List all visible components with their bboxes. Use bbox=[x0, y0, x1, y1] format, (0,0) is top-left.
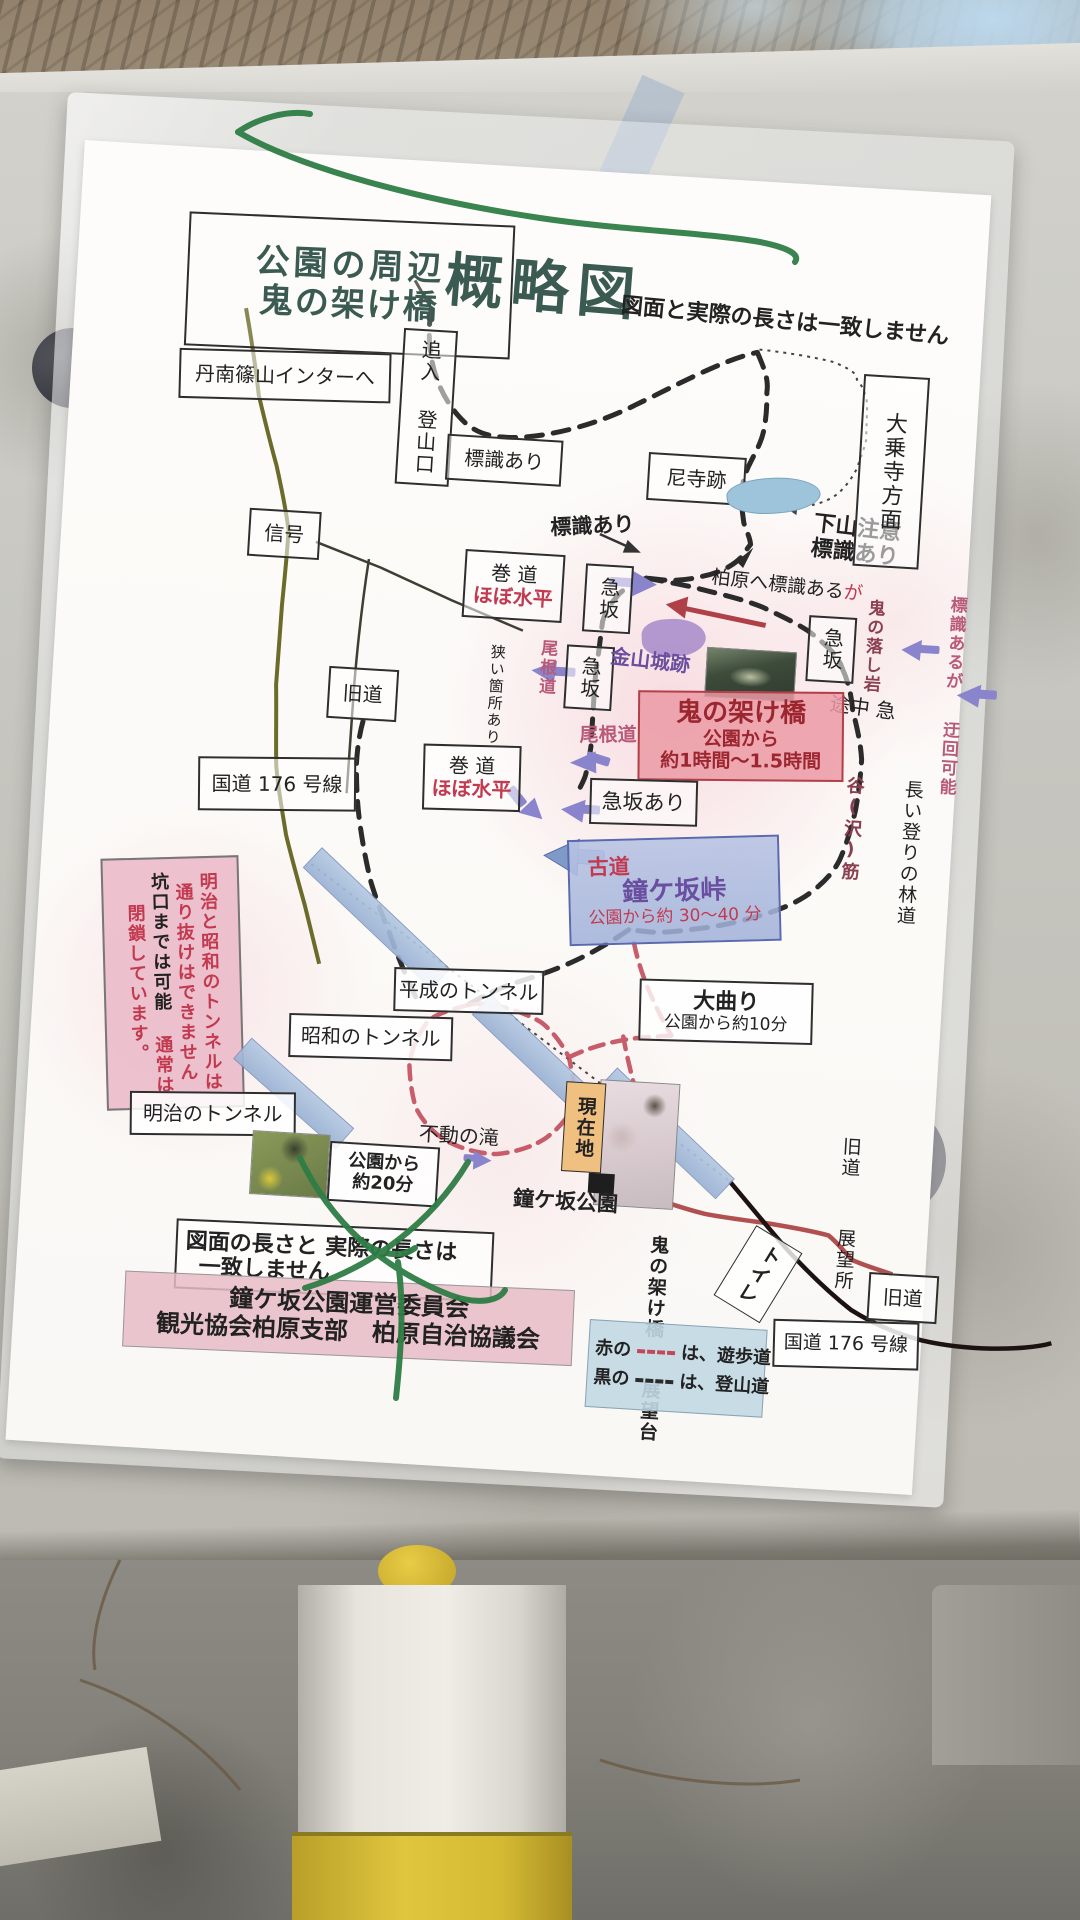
label-heisei-tunnel: 平成のトンネル bbox=[393, 967, 544, 1015]
label-oni-dropped-rock: 鬼の落し岩 bbox=[858, 598, 884, 709]
label-kanegasaka-park: 鐘ケ坂公園 bbox=[512, 1186, 618, 1217]
label-ridge-path-1: 尾根道 bbox=[533, 639, 557, 720]
label-steep-slope-exists: 急坂あり bbox=[589, 778, 698, 827]
legend-box: 赤のは、遊歩道 黒のは、登山道 bbox=[585, 1319, 768, 1418]
label-daijoji-direction: 大乗寺方面 bbox=[852, 374, 930, 570]
flowers-photo-thumbnail bbox=[249, 1130, 331, 1199]
label-tannan-sasayama-interchange: 丹南篠山インターへ bbox=[178, 348, 391, 404]
legend-black-dash-icon bbox=[635, 1378, 673, 1384]
label-traffic-signal: 信号 bbox=[247, 508, 322, 560]
label-meiji-tunnel: 明治のトンネル bbox=[130, 1091, 296, 1136]
photo-of-trail-map-sign: 公園の周辺 鬼の架け橋 概略図 図面と実際の長さは一致しません 丹南篠山インター… bbox=[0, 0, 1080, 1920]
label-signpost-1: 標識あり bbox=[445, 434, 564, 487]
map-paper: 公園の周辺 鬼の架け橋 概略図 図面と実際の長さは一致しません 丹南篠山インター… bbox=[6, 140, 992, 1495]
label-showa-tunnel: 昭和のトンネル bbox=[288, 1013, 453, 1061]
pillar-yellow-base bbox=[292, 1832, 572, 1920]
map-subtitle: 図面と実際の長さは一致しません bbox=[620, 293, 950, 350]
tunnel-warning-box: 明治と昭和のトンネルは 通り抜けはできません 坑口までは可能 通常は閉鎖していま… bbox=[100, 855, 245, 1111]
label-old-road-2: 旧道 bbox=[866, 1272, 939, 1324]
oni-no-kakehashi-info-box: 鬼の架け橋 公園から 約1時間〜1.5時間 bbox=[637, 690, 844, 782]
map-title-line2: 鬼の架け橋 bbox=[258, 281, 440, 328]
label-long-climb-forest-road: 長い登りの林道 bbox=[891, 779, 924, 960]
label-steep-slope-2: 急坂 bbox=[805, 615, 857, 684]
label-20min-from-park: 公園から 約20分 bbox=[327, 1141, 440, 1208]
label-steep-slope-3: 急坂 bbox=[563, 644, 615, 711]
label-ridge-path-2: 尾根道 bbox=[579, 725, 636, 747]
committee-box: 鐘ケ坂公園運営委員会 観光協会柏原支部 柏原自治協議会 bbox=[122, 1271, 575, 1367]
label-route-176-bottom: 国道 176 号線 bbox=[772, 1319, 919, 1371]
label-valley-stream-route: 谷(沢)筋 bbox=[837, 775, 864, 886]
label-steep-slope-1: 急坂 bbox=[582, 563, 634, 634]
label-fudo-falls: 不動の滝 bbox=[418, 1122, 499, 1150]
concrete-block-right bbox=[932, 1585, 1080, 1765]
label-kaibara-signpost: 柏原へ標識あるが bbox=[710, 567, 864, 606]
legend-red-dash-icon bbox=[637, 1349, 675, 1355]
label-old-road-1: 旧道 bbox=[326, 666, 399, 722]
label-traverse-path-2: 巻 道 ほぼ水平 bbox=[422, 744, 522, 813]
label-omagari: 大曲り 公園から約10分 bbox=[638, 978, 814, 1045]
label-signpost-2: 標識あり bbox=[550, 512, 635, 540]
label-traverse-path-1: 巻 道 ほぼ水平 bbox=[462, 549, 566, 623]
label-route-176-top: 国道 176 号線 bbox=[198, 756, 356, 811]
current-location-box: 現在地 bbox=[561, 1081, 606, 1173]
kodo-kanegasaka-pass-box: 古道 鐘ケ坂峠 公園から約 30〜40 分 bbox=[567, 835, 782, 947]
label-toilet: トイレ bbox=[714, 1225, 803, 1323]
